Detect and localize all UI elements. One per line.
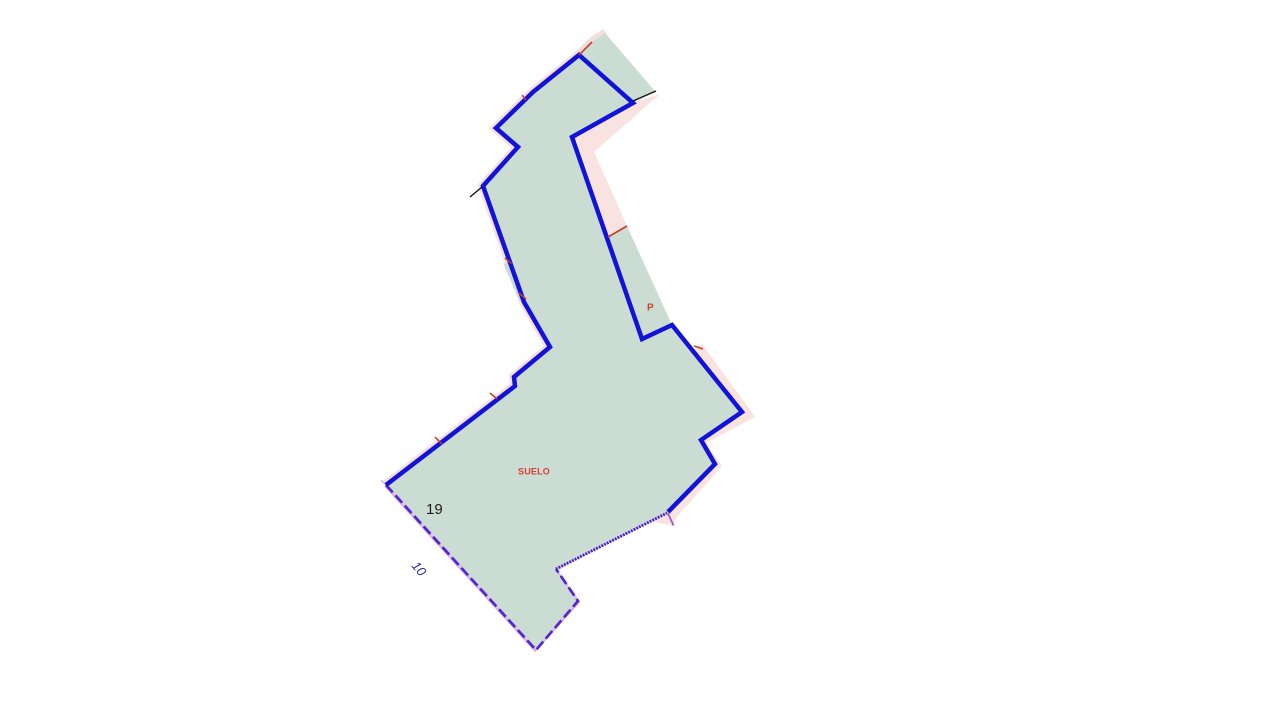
svg-text:P: P xyxy=(647,303,654,314)
svg-text:SUELO: SUELO xyxy=(518,467,550,477)
svg-text:10: 10 xyxy=(409,558,430,579)
svg-text:19: 19 xyxy=(426,501,443,518)
